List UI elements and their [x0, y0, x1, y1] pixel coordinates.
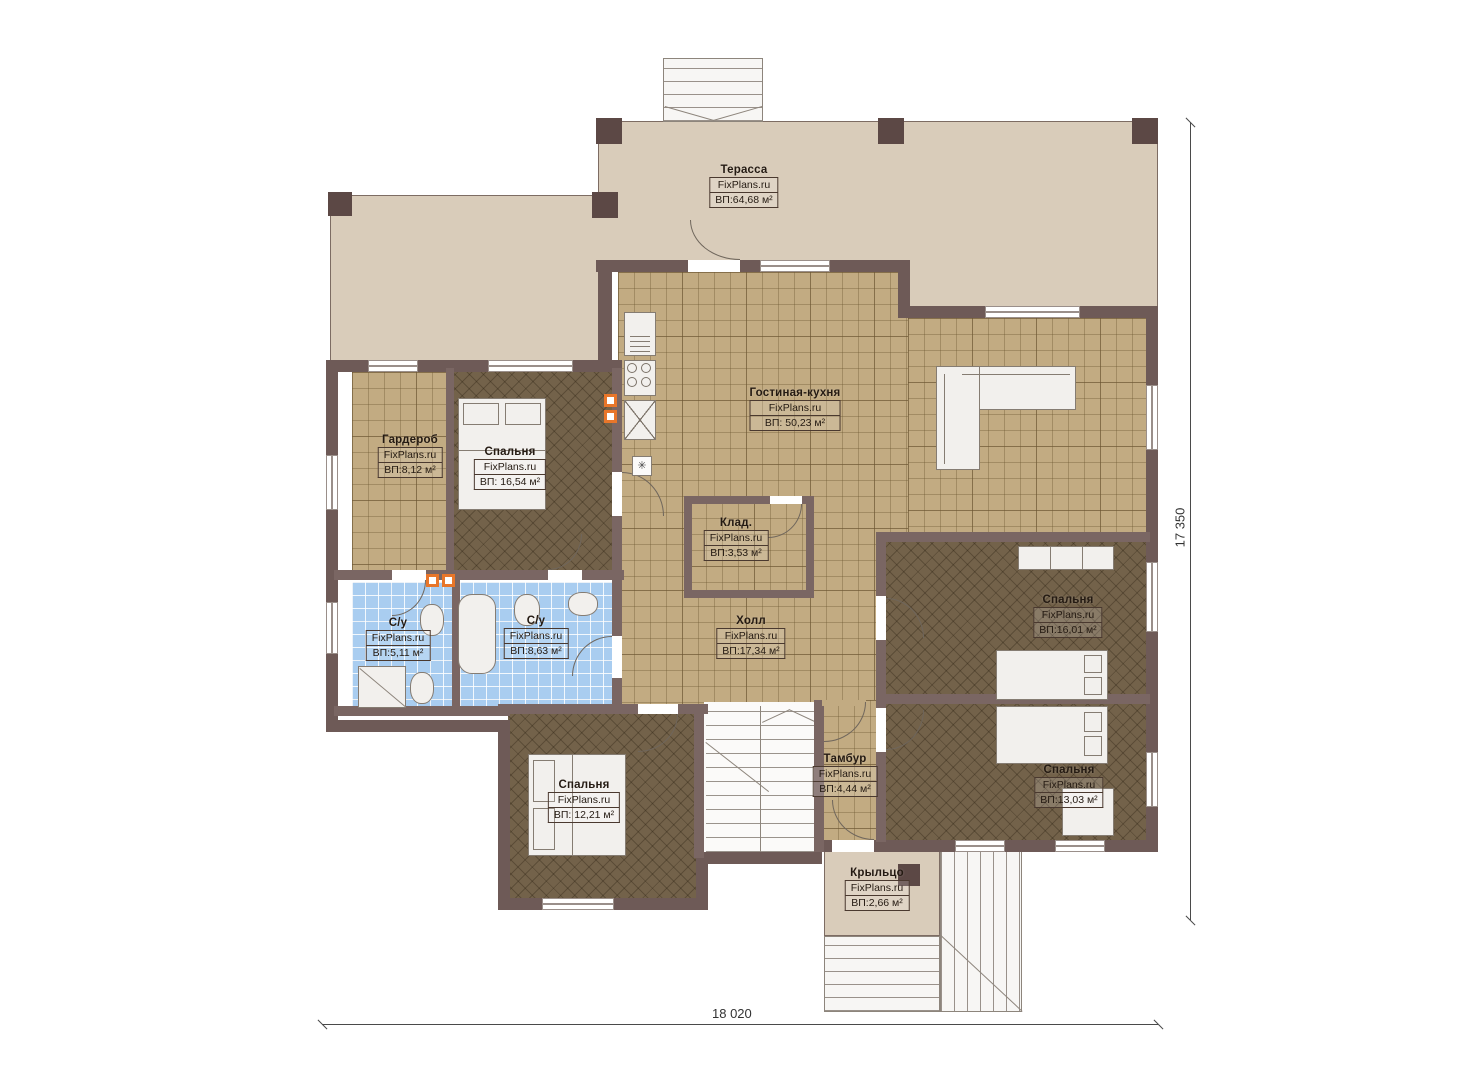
pillow — [463, 403, 499, 425]
closet-divider — [1050, 546, 1051, 570]
watermark: FixPlans.ru — [548, 792, 620, 808]
vent-marker — [426, 574, 439, 587]
window — [488, 360, 573, 372]
terrace-steps — [663, 58, 763, 122]
room-area: ВП:17,34 м² — [716, 644, 785, 659]
porch-steps — [940, 850, 1022, 1012]
door-opening — [832, 840, 874, 852]
window — [1146, 385, 1158, 450]
window — [326, 602, 338, 654]
wall-segment — [326, 720, 510, 732]
stove-burner-icon — [627, 377, 637, 387]
room-name: Терасса — [709, 164, 778, 176]
room-area: ВП:64,68 м² — [709, 193, 778, 208]
room-label-bathroom-1: С/у FixPlans.ru ВП:5,11 м² — [366, 617, 431, 661]
room-label-hall: Холл FixPlans.ru ВП:17,34 м² — [716, 615, 785, 659]
room-name: С/у — [504, 615, 569, 627]
vent-marker — [442, 574, 455, 587]
sofa — [936, 366, 980, 470]
dimension-height-label: 17 350 — [1172, 508, 1187, 548]
fridge-lines — [630, 334, 650, 352]
room-name: Спальня — [548, 779, 620, 791]
window — [1055, 840, 1105, 852]
stove-burner-icon — [641, 377, 651, 387]
pillar — [596, 118, 622, 144]
room-area: ВП:3,53 м² — [704, 546, 769, 561]
wall-segment — [696, 852, 822, 864]
dimension-line-bottom — [322, 1024, 1158, 1025]
pillar — [592, 192, 618, 218]
toilet — [410, 672, 434, 704]
bathtub — [458, 594, 496, 674]
window — [368, 360, 418, 372]
room-name: Спальня — [474, 446, 546, 458]
room-label-bedroom-4: Спальня FixPlans.ru ВП: 12,21 м² — [548, 779, 620, 823]
room-label-bedroom-2: Спальня FixPlans.ru ВП:16,01 м² — [1033, 594, 1102, 638]
watermark: FixPlans.ru — [709, 177, 778, 193]
room-name: С/у — [366, 617, 431, 629]
terrace-outline — [330, 195, 331, 364]
pillar — [328, 192, 352, 216]
door-opening — [612, 472, 622, 516]
window — [542, 898, 614, 910]
door-opening — [612, 636, 622, 678]
door-opening — [688, 260, 740, 272]
window — [760, 260, 830, 272]
room-area: ВП: 12,21 м² — [548, 808, 620, 823]
pillow — [1084, 655, 1102, 673]
door-opening — [876, 708, 886, 752]
pillow — [505, 403, 541, 425]
room-label-living-kitchen: Гостиная-кухня FixPlans.ru ВП: 50,23 м² — [750, 387, 841, 431]
bathroom-sink — [568, 592, 598, 616]
partition-wall — [684, 496, 692, 598]
stairs-treads — [706, 706, 816, 852]
partition-wall — [694, 708, 704, 858]
door-opening — [876, 596, 886, 640]
partition-wall — [880, 532, 1150, 542]
pillar — [1132, 118, 1158, 144]
window — [955, 840, 1005, 852]
room-area: ВП:2,66 м² — [845, 896, 910, 911]
pillow — [1084, 712, 1102, 732]
floor-plan: ✳ Терасса FixPlans.ru ВП:64,68 м² Гостин… — [0, 0, 1474, 1080]
watermark: FixPlans.ru — [750, 400, 841, 416]
watermark: FixPlans.ru — [1034, 777, 1103, 793]
watermark: FixPlans.ru — [378, 447, 443, 463]
room-area: ВП:8,12 м² — [378, 463, 443, 478]
door-opening — [638, 704, 678, 714]
room-label-terrace: Терасса FixPlans.ru ВП:64,68 м² — [709, 164, 778, 208]
watermark: FixPlans.ru — [1033, 607, 1102, 623]
room-name: Спальня — [1034, 764, 1103, 776]
room-name: Гардероб — [378, 434, 443, 446]
wall-segment — [596, 260, 910, 272]
partition-wall — [876, 532, 886, 842]
dimension-line-right — [1190, 122, 1191, 920]
room-area: ВП:8,63 м² — [504, 644, 569, 659]
room-area: ВП:5,11 м² — [366, 646, 431, 661]
watermark: FixPlans.ru — [845, 880, 910, 896]
partition-wall — [446, 368, 454, 572]
window — [1146, 562, 1158, 632]
wall-segment — [326, 360, 338, 732]
dimension-width-label: 18 020 — [712, 1006, 752, 1021]
room-name: Спальня — [1033, 594, 1102, 606]
room-area: ВП: 50,23 м² — [750, 416, 841, 431]
door-opening — [548, 570, 582, 580]
watermark: FixPlans.ru — [366, 630, 431, 646]
room-name: Крыльцо — [845, 867, 910, 879]
watermark: FixPlans.ru — [813, 766, 878, 782]
watermark: FixPlans.ru — [716, 628, 785, 644]
room-name: Холл — [716, 615, 785, 627]
sofa-cushion-line — [944, 374, 945, 464]
stairs-divider — [760, 706, 761, 852]
wall-segment — [498, 720, 510, 910]
watermark: FixPlans.ru — [504, 628, 569, 644]
room-label-bedroom-1: Спальня FixPlans.ru ВП: 16,54 м² — [474, 446, 546, 490]
stove-burner-icon — [641, 363, 651, 373]
room-area: ВП:13,03 м² — [1034, 793, 1103, 808]
pillow — [1084, 677, 1102, 695]
watermark: FixPlans.ru — [704, 530, 769, 546]
room-name: Клад. — [704, 517, 769, 529]
vent-marker — [604, 410, 617, 423]
closet-divider — [1082, 546, 1083, 570]
watermark: FixPlans.ru — [474, 459, 546, 475]
room-label-bedroom-3: Спальня FixPlans.ru ВП:13,03 м² — [1034, 764, 1103, 808]
room-label-bathroom-2: С/у FixPlans.ru ВП:8,63 м² — [504, 615, 569, 659]
room-area: ВП:16,01 м² — [1033, 623, 1102, 638]
partition-wall — [806, 496, 814, 598]
wall-segment — [880, 840, 1158, 852]
room-name: Тамбур — [813, 753, 878, 765]
room-terrace-floor — [330, 196, 598, 364]
pillar — [878, 118, 904, 144]
room-label-wardrobe: Гардероб FixPlans.ru ВП:8,12 м² — [378, 434, 443, 478]
floor-drain-icon: ✳ — [632, 456, 652, 476]
pillow — [1084, 736, 1102, 756]
room-label-storage: Клад. FixPlans.ru ВП:3,53 м² — [704, 517, 769, 561]
window — [326, 455, 338, 510]
wall-segment — [598, 264, 612, 364]
vent-marker — [604, 394, 617, 407]
room-area: ВП: 16,54 м² — [474, 475, 546, 490]
door-opening — [770, 496, 802, 504]
stove-burner-icon — [627, 363, 637, 373]
room-label-tambour: Тамбур FixPlans.ru ВП:4,44 м² — [813, 753, 878, 797]
porch-steps — [824, 936, 940, 1012]
window — [985, 306, 1080, 318]
kitchen-sink — [624, 400, 656, 440]
terrace-outline — [330, 195, 599, 196]
room-label-porch: Крыльцо FixPlans.ru ВП:2,66 м² — [845, 867, 910, 911]
sofa-cushion-line — [962, 374, 1070, 375]
door-opening — [392, 570, 426, 580]
room-name: Гостиная-кухня — [750, 387, 841, 399]
terrace-outline — [1157, 121, 1158, 310]
partition-wall — [684, 590, 814, 598]
room-area: ВП:4,44 м² — [813, 782, 878, 797]
window — [1146, 752, 1158, 807]
closet — [1018, 546, 1114, 570]
room-terrace-floor — [908, 122, 1158, 310]
